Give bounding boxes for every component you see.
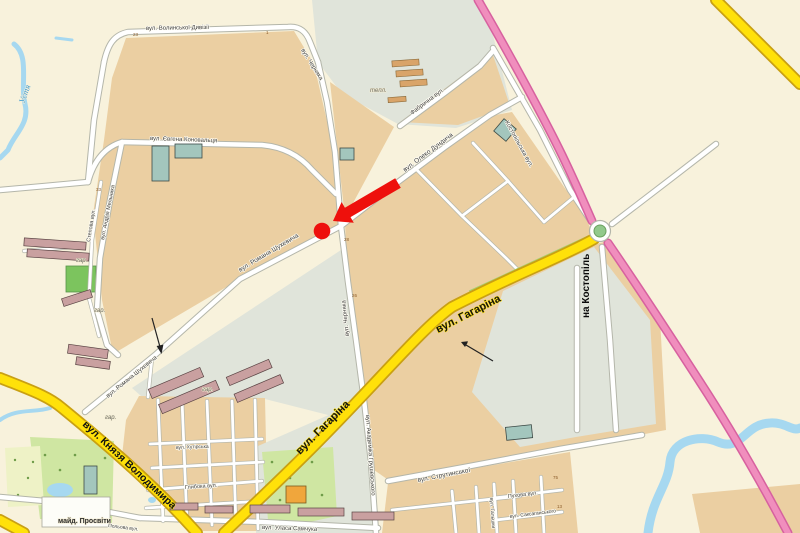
- building-teal: [340, 148, 354, 160]
- greenhouse: [388, 96, 406, 102]
- street-label-khutirska: вул. Хутірська: [176, 444, 209, 451]
- building-orange: [286, 486, 306, 503]
- river-dash: [56, 38, 72, 40]
- house-number: 23: [133, 32, 139, 37]
- roundabout: [590, 221, 611, 242]
- house-number: 13: [557, 504, 563, 509]
- place-label-har-3: гар.: [202, 387, 213, 393]
- place-label-har-2: гар.: [94, 308, 105, 314]
- house-number: 20: [131, 469, 137, 474]
- building-row: [205, 506, 233, 513]
- building-row: [298, 508, 344, 516]
- house-number: 26: [352, 293, 358, 298]
- map-canvas[interactable]: вул. Волинської Дивізії вул. Черняка вул…: [0, 0, 800, 533]
- building-teal: [175, 144, 202, 158]
- building-teal: [505, 425, 532, 441]
- direction-label-na-kostopil: на Костопіль: [581, 254, 592, 318]
- place-label-teplytsi: тепл.: [370, 88, 387, 94]
- location-marker: [314, 223, 331, 240]
- pond-park: [47, 483, 73, 497]
- place-label-har-4: гар.: [105, 415, 116, 421]
- place-label-maid-prosvity: майд. Просвіти: [58, 517, 111, 525]
- pond-small: [148, 497, 156, 503]
- building-teal: [152, 146, 169, 181]
- map-svg: вул. Волинської Дивізії вул. Черняка вул…: [0, 0, 800, 533]
- building-row: [250, 505, 290, 513]
- place-label-har-1: гар.: [76, 258, 87, 264]
- building-row: [352, 512, 394, 520]
- building-teal: [84, 466, 97, 494]
- street-label-volynskoi-dyvizii: вул. Волинської Дивізії: [146, 25, 210, 32]
- house-number: 33: [96, 187, 102, 192]
- house-number: 75: [553, 475, 559, 480]
- house-number: 28: [344, 237, 350, 242]
